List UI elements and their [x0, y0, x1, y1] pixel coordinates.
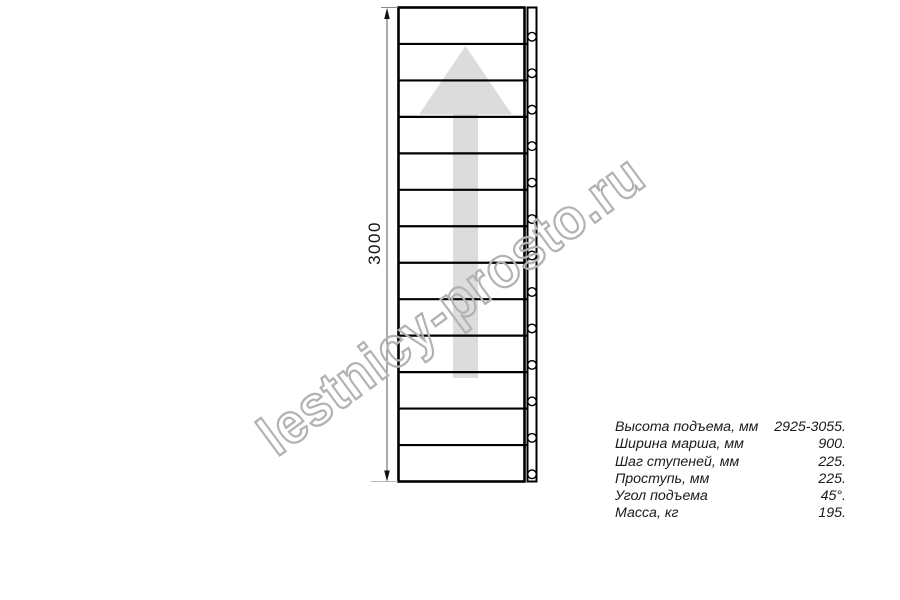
spec-value: 225. — [818, 454, 846, 471]
spec-row: Проступь, мм225. — [615, 471, 846, 488]
spec-row: Высота подъема, мм2925-3055. — [615, 419, 846, 436]
bolt-circle — [528, 142, 537, 151]
dimension-arrowhead-down — [384, 471, 390, 482]
bolt-circle — [528, 434, 537, 443]
bolt-circle — [528, 324, 537, 333]
spec-label: Проступь, мм — [615, 471, 709, 488]
spec-value: 45°. — [821, 488, 846, 505]
spec-row: Масса, кг195. — [615, 505, 846, 522]
spec-label: Угол подъема — [615, 488, 708, 505]
bolt-circle — [528, 361, 537, 370]
bolt-circle — [528, 32, 537, 41]
spec-table: Высота подъема, мм2925-3055.Ширина марша… — [615, 419, 846, 523]
bolt-circle — [528, 105, 537, 114]
spec-row: Угол подъема45°. — [615, 488, 846, 505]
bolt-circle — [528, 178, 537, 187]
bolt-circle — [528, 397, 537, 406]
spec-label: Масса, кг — [615, 505, 679, 522]
spec-value: 2925-3055. — [774, 419, 846, 436]
dimension-arrowhead-up — [384, 8, 390, 19]
spec-value: 225. — [818, 471, 846, 488]
spec-label: Шаг ступеней, мм — [615, 454, 739, 471]
bolt-circle — [528, 288, 537, 297]
spec-label: Высота подъема, мм — [615, 419, 758, 436]
dimension-label: 3000 — [365, 221, 384, 265]
spec-value: 195. — [818, 505, 846, 522]
bolt-circle — [528, 470, 537, 479]
watermark-text: lestnicy-prosto.ru — [246, 142, 656, 468]
spec-row: Шаг ступеней, мм225. — [615, 454, 846, 471]
spec-label: Ширина марша, мм — [615, 436, 744, 453]
staircase-drawing-page: 3000 lestnicy-prosto.ru Высота подъема, … — [0, 0, 900, 600]
bolt-circle — [528, 69, 537, 78]
spec-value: 900. — [818, 436, 846, 453]
spec-row: Ширина марша, мм900. — [615, 436, 846, 453]
